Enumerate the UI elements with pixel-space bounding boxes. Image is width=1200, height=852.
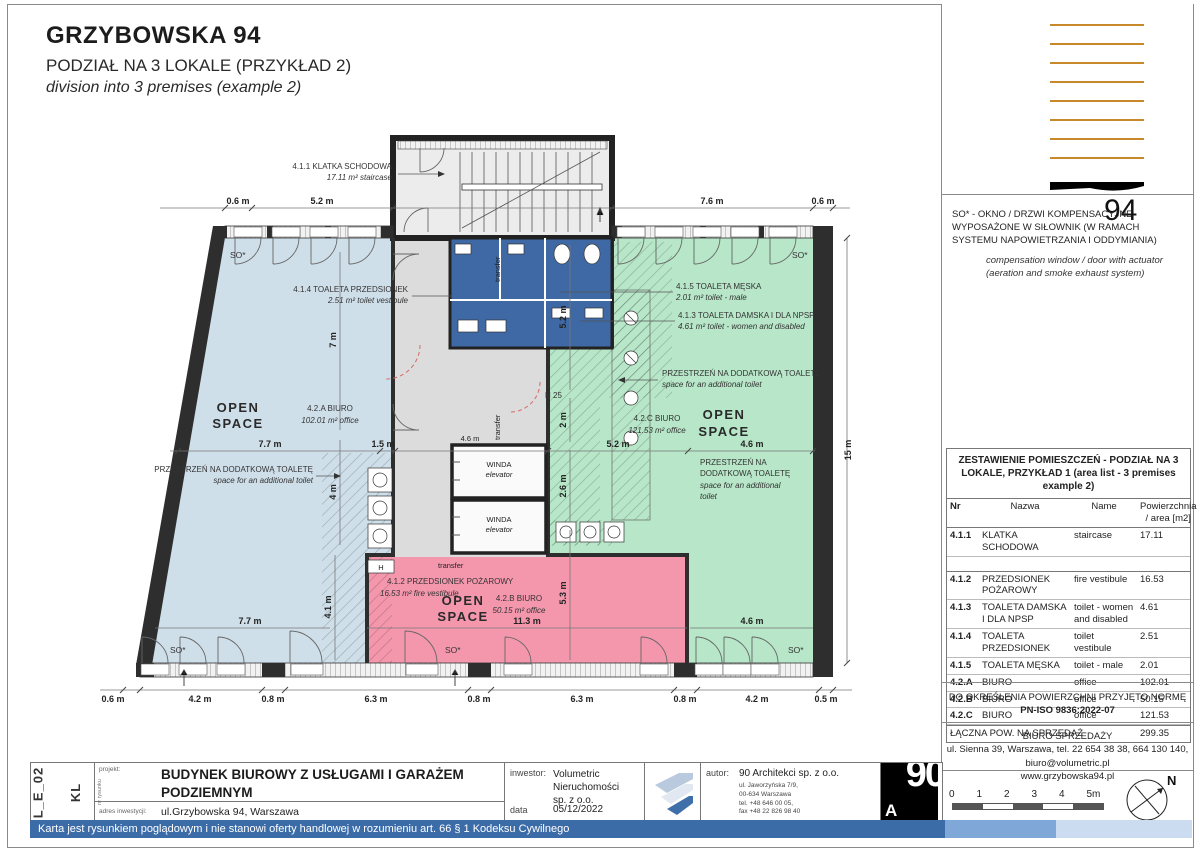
table-row: 4.1.2PRZEDSIONEK POŻAROWYfire vestibule1… [947,572,1190,601]
col-nr: Nr [947,499,979,527]
investor-cell: inwestor: Volumetric Nieruchomości sp. z… [505,763,645,821]
svg-text:4.2.B BIURO: 4.2.B BIURO [496,594,542,603]
svg-text:OPEN: OPEN [217,400,260,415]
svg-text:SO*: SO* [170,645,186,655]
svg-text:SO*: SO* [792,250,808,260]
hydrant-label: H [378,563,383,572]
col-area: Powierzchnia / area [m2] [1137,499,1200,527]
svg-text:4.6 m: 4.6 m [461,434,480,443]
svg-text:OPEN: OPEN [703,407,746,422]
so-legend-en: compensation window / door with actuator… [986,255,1183,281]
project-label: projekt: [95,763,161,801]
svg-text:DODATKOWĄ TOALETĘ: DODATKOWĄ TOALETĘ [700,469,790,478]
investor-label: inwestor: [510,768,546,778]
svg-text:SO*: SO* [445,645,461,655]
investor-name-2: Nieruchomości [553,781,619,794]
svg-text:SO*: SO* [230,250,246,260]
drawing-code-cell: L_E_02 KL nr rysunku [31,763,95,821]
svg-text:SO*: SO* [788,645,804,655]
svg-text:4.2 m: 4.2 m [745,694,768,704]
volumetric-logo [651,767,695,817]
so-legend: SO* - OKNO / DRZWI KOMPENSACYJNE WYPOSAŻ… [942,194,1193,281]
svg-text:4.1.1 KLATKA SCHODOWA: 4.1.1 KLATKA SCHODOWA [292,162,392,171]
svg-text:121.53 m² office: 121.53 m² office [628,426,686,435]
norm-note: DO OKREŚLENIA POWIERZCHNI PRZYJĘTO NORMĘ… [942,682,1193,718]
project-title-line2: PODZIEMNYM [161,784,464,802]
col-nazwa: Nazwa [979,499,1071,527]
svg-text:SPACE: SPACE [212,416,263,431]
svg-text:7.7 m: 7.7 m [258,439,281,449]
svg-text:SPACE: SPACE [698,424,749,439]
svg-text:4.2.A BIURO: 4.2.A BIURO [307,404,353,413]
elevator-1-label-pl: WINDA [487,460,512,469]
svg-text:2.01 m² toilet - male: 2.01 m² toilet - male [675,293,747,302]
svg-text:PRZESTRZEŃ NA DODATKOWĄ TOALET: PRZESTRZEŃ NA DODATKOWĄ TOALETĘ [154,465,313,474]
svg-text:4.1 m: 4.1 m [323,595,333,618]
author-label: autor: [706,768,729,778]
svg-text:1.5 m: 1.5 m [371,439,394,449]
elevator-1-label-en: elevator [486,470,513,479]
drawing-sheet: WINDA elevator WINDA elevator H [0,0,1200,852]
svg-text:11.3 m: 11.3 m [513,616,541,626]
volumetric-logo-cell [645,763,701,821]
svg-text:PRZESTRZEŃ NA: PRZESTRZEŃ NA [700,458,767,467]
svg-text:7 m: 7 m [328,332,338,348]
north-label: N [1167,773,1176,788]
svg-text:4.6 m: 4.6 m [740,439,763,449]
svg-text:50.15 m² office: 50.15 m² office [493,606,546,615]
table-row: 4.1.1KLATKA SCHODOWAstaircase17.11 [947,528,1190,557]
sales-office-title: BIURO SPRZEDAŻY [942,730,1193,743]
svg-text:space for an additional: space for an additional [700,481,781,490]
table-row: 4.1.5TOALETA MĘSKAtoilet - male2.01 [947,658,1190,675]
svg-text:5.2 m: 5.2 m [606,439,629,449]
drawing-number: L_E_02 [30,766,45,818]
svg-text:4.1.3 TOALETA DAMSKA I DLA NP: 4.1.3 TOALETA DAMSKA I DLA NPSP [678,311,815,320]
svg-text:H 25: H 25 [545,391,562,400]
staircase-window [398,141,607,149]
scale-bar: 01 23 45m [952,789,1117,810]
svg-text:4.61 m² toilet - women and di: 4.61 m² toilet - women and disabled [678,322,805,331]
svg-text:5.2 m: 5.2 m [310,196,333,206]
sheet-title: GRZYBOWSKA 94 PODZIAŁ NA 3 LOKALE (PRZYK… [46,22,466,97]
disclaimer-bar: Karta jest rysunkiem poglądowym i nie st… [30,820,1192,838]
sheet-subtitle-en: division into 3 premises (example 2) [46,79,466,97]
title-block: L_E_02 KL nr rysunku projekt: BUDYNEK BI… [30,762,943,822]
floor-code: KL [68,782,83,801]
svg-text:7.6 m: 7.6 m [700,196,723,206]
svg-text:0.5 m: 0.5 m [814,694,837,704]
svg-text:15 m: 15 m [843,440,853,461]
investment-address: ul.Grzybowska 94, Warszawa [161,806,299,818]
svg-text:0.8 m: 0.8 m [467,694,490,704]
author-name: 90 Architekci sp. z o.o. [739,768,839,779]
table-spacer [947,557,1190,572]
svg-text:102.01 m² office: 102.01 m² office [301,416,359,425]
svg-text:5.2 m: 5.2 m [558,305,568,328]
svg-text:space for an additional toilet: space for an additional toilet [662,380,762,389]
svg-text:0.8 m: 0.8 m [673,694,696,704]
so-legend-pl: SO* - OKNO / DRZWI KOMPENSACYJNE WYPOSAŻ… [952,209,1183,247]
disclaimer-text: Karta jest rysunkiem poglądowym i nie st… [30,820,945,838]
scale-and-north: 01 23 45m N [942,770,1193,821]
svg-text:4.6 m: 4.6 m [740,616,763,626]
svg-text:0.6 m: 0.6 m [101,694,124,704]
svg-text:0.6 m: 0.6 m [226,196,249,206]
table-row: 4.1.4TOALETA PRZEDSIONEKtoilet vestibule… [947,629,1190,658]
sales-office-address: ul. Sienna 39, Warszawa, tel. 22 654 38 … [942,743,1193,756]
svg-text:5.3 m: 5.3 m [558,581,568,604]
sheet-subtitle-pl: PODZIAŁ NA 3 LOKALE (PRZYKŁAD 2) [46,56,466,76]
date-label: data [510,805,528,815]
norm-number: PN-ISO 9836:2022-07 [942,704,1193,717]
svg-text:PRZESTRZEŃ NA DODATKOWĄ TOALET: PRZESTRZEŃ NA DODATKOWĄ TOALETĘ [662,369,821,378]
svg-text:space for an additional toilet: space for an additional toilet [213,476,313,485]
project-cell: projekt: BUDYNEK BIUROWY Z USŁUGAMI I GA… [95,763,505,821]
wall-right [813,226,833,677]
svg-text:2.6 m: 2.6 m [558,474,568,497]
svg-text:17.11 m² staircase: 17.11 m² staircase [327,173,393,182]
svg-text:transfer: transfer [493,256,502,282]
north-arrow: N [1117,773,1183,823]
date-value: 05/12/2022 [553,804,603,815]
svg-text:OPEN: OPEN [442,593,485,608]
svg-text:SPACE: SPACE [437,609,488,624]
disclaimer-segment-light [1056,820,1192,838]
svg-text:0.8 m: 0.8 m [261,694,284,704]
sales-office-email: biuro@volumetric.pl [942,757,1193,770]
svg-text:4.1.4 TOALETA PRZEDSIONEK: 4.1.4 TOALETA PRZEDSIONEK [293,285,408,294]
svg-text:transfer: transfer [438,561,464,570]
svg-text:7.7 m: 7.7 m [238,616,261,626]
col-name: Name [1071,499,1137,527]
svg-text:4.1.5 TOALETA MĘSKA: 4.1.5 TOALETA MĘSKA [676,282,762,291]
table-row: 4.1.3TOALETA DAMSKA I DLA NPSPtoilet - w… [947,600,1190,629]
author-cell: autor: 90 Architekci sp. z o.o. ul. Jawo… [701,763,881,821]
area-table-header: Nr Nazwa Name Powierzchnia / area [m2] [947,499,1190,528]
svg-text:6.3 m: 6.3 m [364,694,387,704]
svg-text:transfer: transfer [493,414,502,440]
disclaimer-segment-mid [945,820,1056,838]
area-table-title: ZESTAWIENIE POMIESZCZEŃ - PODZIAŁ NA 3 L… [947,449,1190,499]
svg-text:4 m: 4 m [328,484,338,500]
svg-text:0.6 m: 0.6 m [811,196,834,206]
project-title-line1: BUDYNEK BIUROWY Z USŁUGAMI I GARAŻEM [161,766,464,784]
svg-text:4.1.2 PRZEDSIONEK POŻAROWY: 4.1.2 PRZEDSIONEK POŻAROWY [387,577,514,586]
investor-name-1: Volumetric [553,768,619,781]
svg-text:4.2.C BIURO: 4.2.C BIURO [634,414,681,423]
address-label: adres inwestycji: [95,805,161,818]
svg-text:2.51 m² toilet vestibule: 2.51 m² toilet vestibule [327,296,409,305]
right-panel: 94 SO* - OKNO / DRZWI KOMPENSACYJNE WYPO… [941,4,1193,820]
svg-text:6.3 m: 6.3 m [570,694,593,704]
elevator-2-label-en: elevator [486,525,513,534]
svg-text:2 m: 2 m [558,412,568,428]
svg-text:toilet: toilet [700,492,718,501]
svg-text:4.2 m: 4.2 m [188,694,211,704]
elevator-2-label-pl: WINDA [487,515,512,524]
logo-90-architekci: 90 A [881,763,938,821]
project-name: GRZYBOWSKA 94 [46,22,466,50]
